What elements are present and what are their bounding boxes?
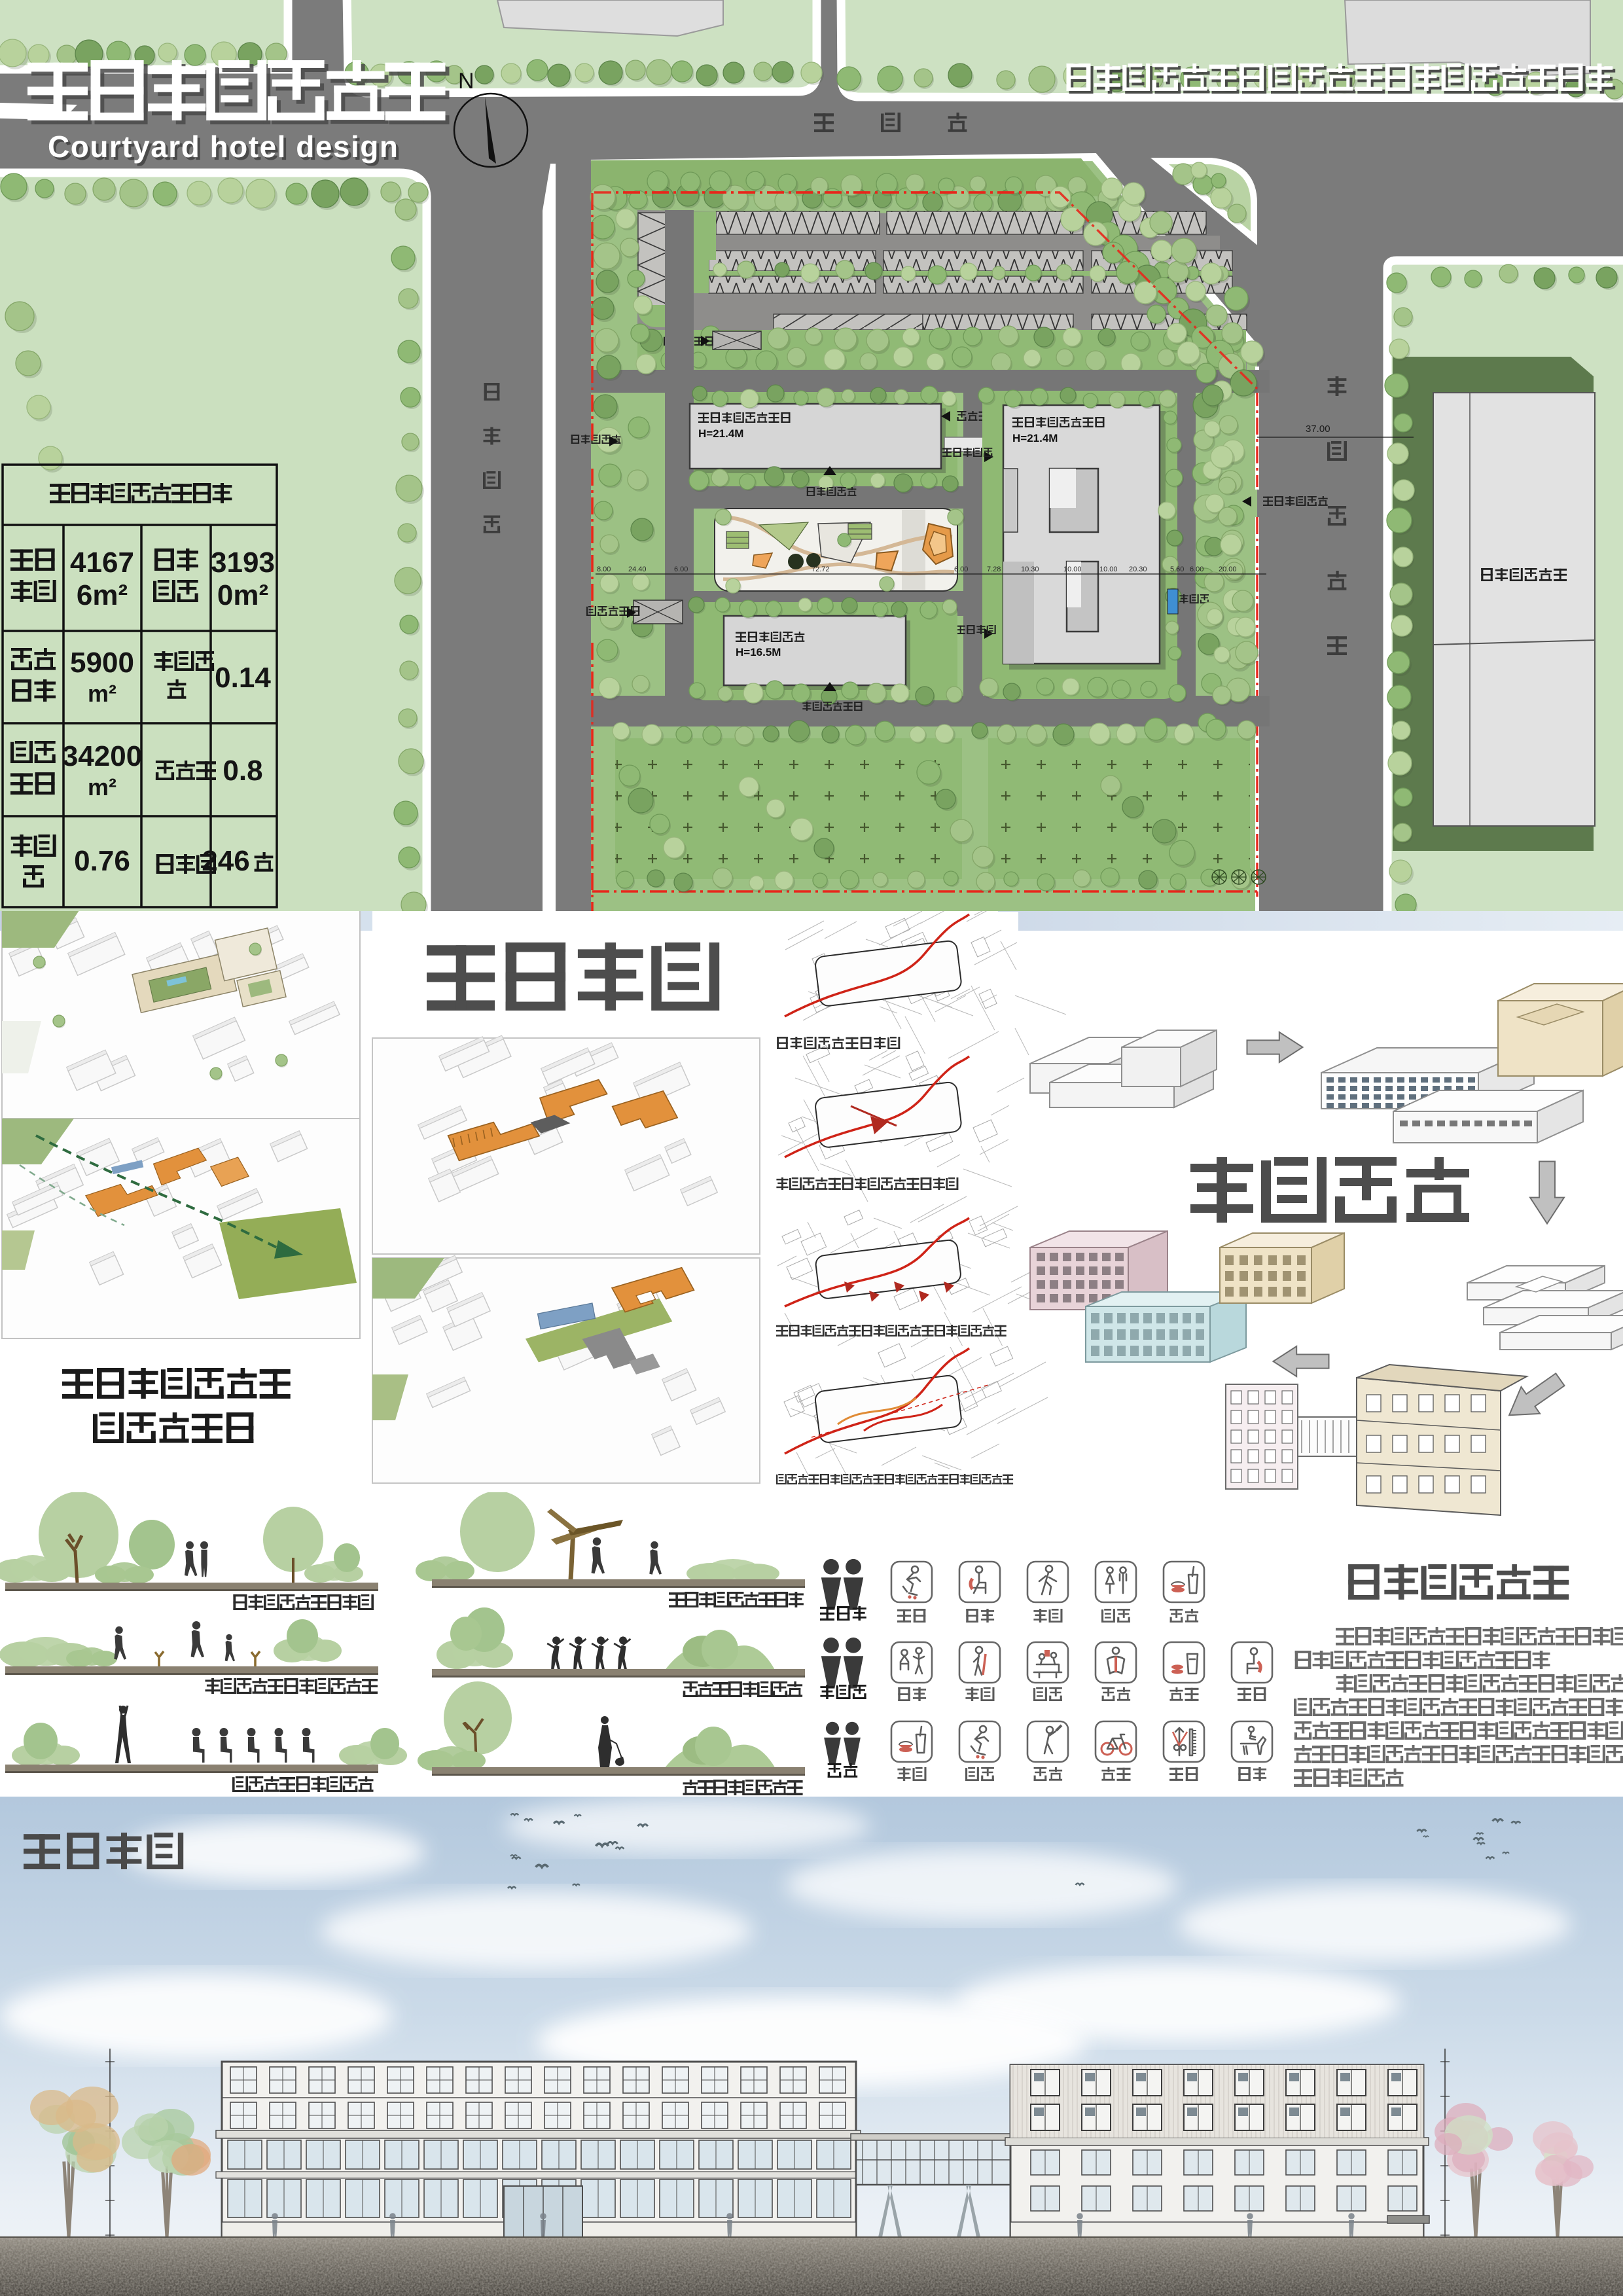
svg-text:72.72: 72.72 — [811, 565, 830, 573]
svg-text:5900: 5900 — [70, 647, 134, 679]
svg-text:20.00: 20.00 — [1219, 565, 1237, 573]
svg-text:0.76: 0.76 — [74, 845, 130, 877]
svg-text:H=21.4M: H=21.4M — [698, 427, 743, 440]
svg-text:6.00: 6.00 — [954, 565, 968, 573]
svg-text:37.00: 37.00 — [1306, 423, 1330, 435]
svg-text:4167: 4167 — [70, 547, 134, 579]
svg-text:246: 246 — [202, 845, 249, 877]
svg-text:6.00: 6.00 — [674, 565, 688, 573]
svg-text:0.14: 0.14 — [215, 662, 271, 694]
svg-text:7.28: 7.28 — [987, 565, 1001, 573]
svg-text:10.30: 10.30 — [1021, 565, 1039, 573]
svg-text:N: N — [458, 69, 474, 94]
svg-text:0.8: 0.8 — [223, 755, 262, 787]
svg-text:5.60: 5.60 — [1170, 565, 1184, 573]
svg-text:10.00: 10.00 — [1063, 565, 1082, 573]
svg-text:6.00: 6.00 — [1190, 565, 1204, 573]
svg-text:34200: 34200 — [62, 740, 142, 772]
svg-text:24.40: 24.40 — [628, 565, 647, 573]
svg-text:0m²: 0m² — [217, 579, 268, 611]
svg-text:Courtyard hotel design: Courtyard hotel design — [48, 130, 399, 164]
svg-text:6m²: 6m² — [77, 579, 128, 611]
svg-text:m²: m² — [88, 774, 116, 800]
svg-text:H=21.4M: H=21.4M — [1012, 432, 1058, 444]
svg-text:8.00: 8.00 — [597, 565, 611, 573]
svg-text:m²: m² — [88, 680, 116, 707]
svg-text:3193: 3193 — [211, 547, 275, 579]
svg-text:H=16.5M: H=16.5M — [736, 646, 781, 658]
svg-text:10.00: 10.00 — [1099, 565, 1118, 573]
svg-text:20.30: 20.30 — [1129, 565, 1147, 573]
